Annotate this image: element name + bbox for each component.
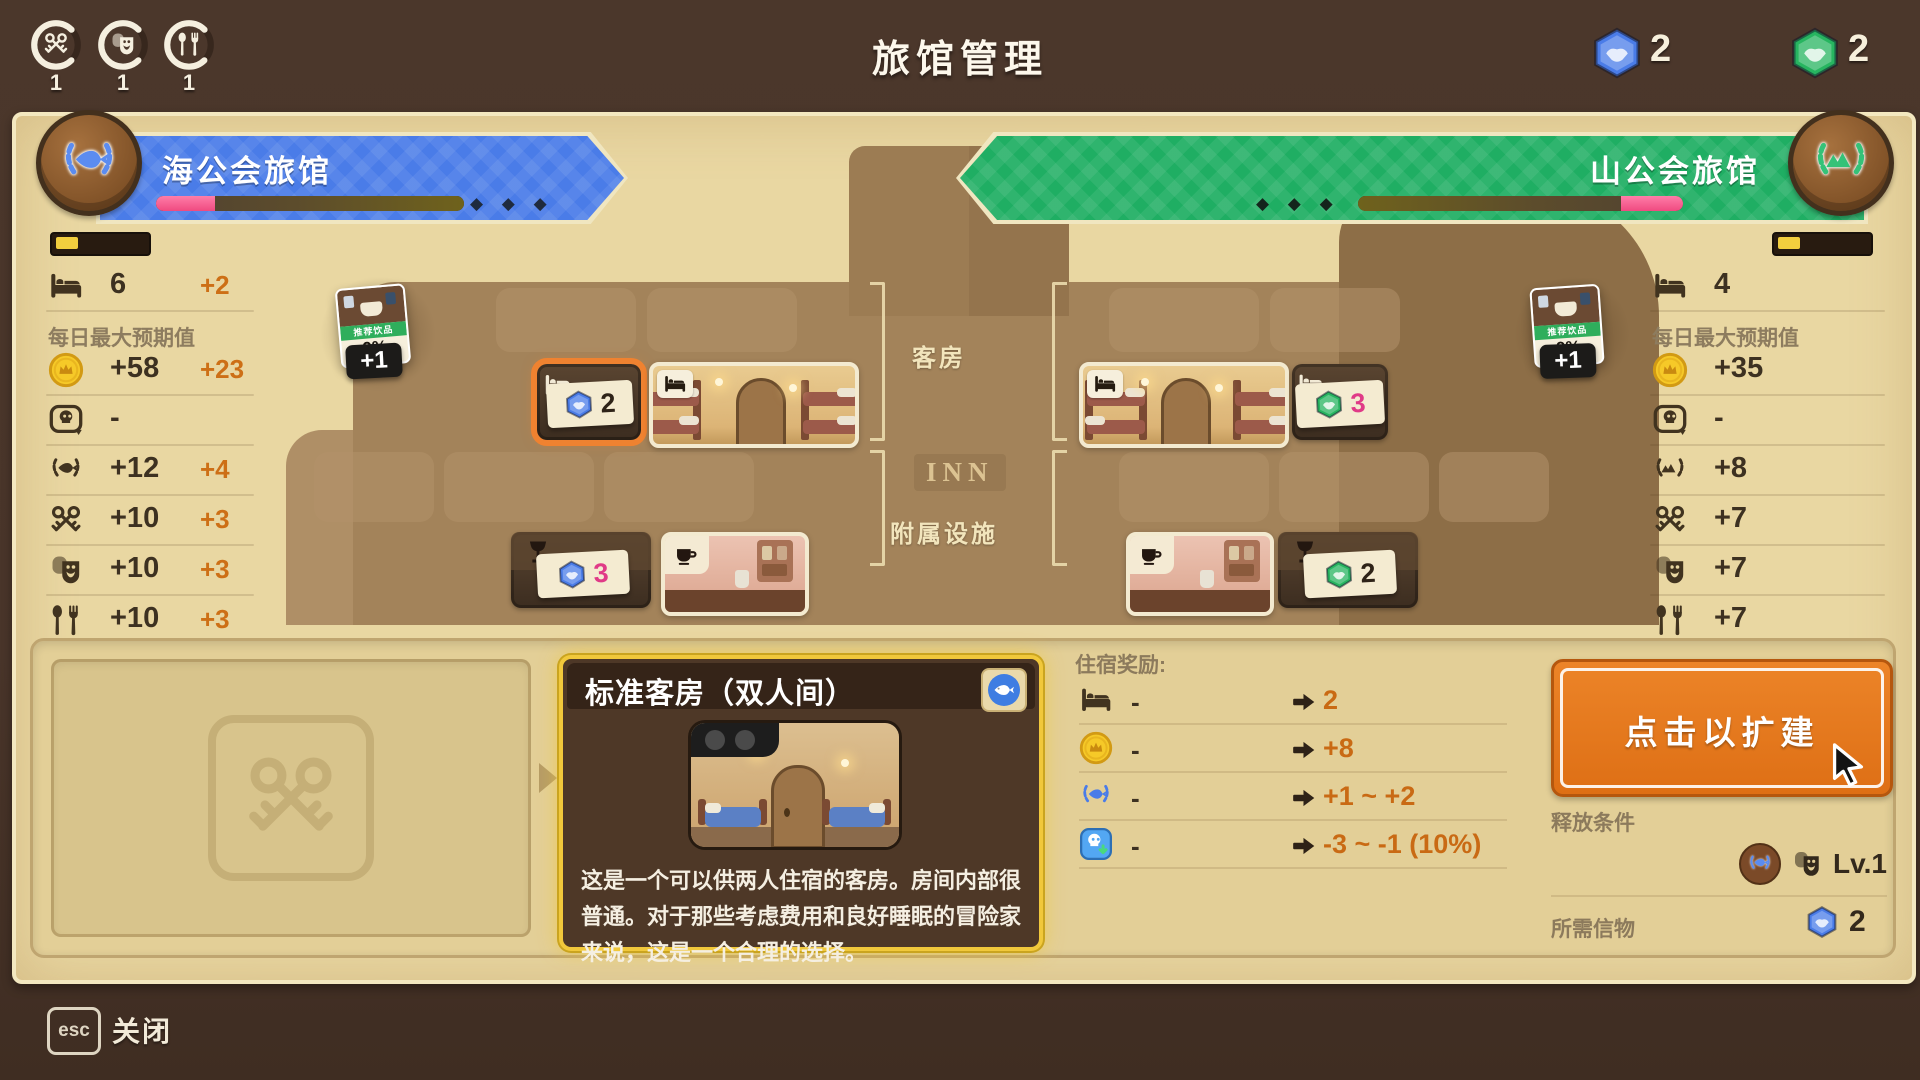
divider (1551, 895, 1887, 897)
required-token-count: 2 (1849, 905, 1866, 939)
coffee-cup-icon (674, 542, 700, 568)
divider (1079, 723, 1507, 725)
stat-value: 6 (110, 268, 126, 301)
stat-delta: +3 (200, 504, 230, 535)
reward-result: +8 (1323, 733, 1354, 764)
reward-current: - (1131, 831, 1140, 862)
blue-token-icon (557, 559, 589, 591)
facility-cafe-left[interactable] (661, 532, 809, 616)
right-inn-rank-diamonds: ◆ ◆ ◆ (1256, 194, 1340, 214)
fish-laurel-icon (1079, 779, 1113, 813)
right-inn-progress (1358, 196, 1683, 211)
blue-token-count: 2 (1650, 28, 1671, 71)
coin-icon (1079, 731, 1113, 765)
stat-value: +7 (1714, 552, 1747, 585)
required-tokens-row: 2 (1805, 905, 1866, 939)
stat-value: +35 (1714, 352, 1763, 385)
reward-result: 2 (1323, 685, 1338, 716)
candle-light (1215, 384, 1223, 392)
right-inn-banner: 山公会旅馆 ◆ ◆ ◆ (956, 132, 1868, 224)
blue-token-icon (1590, 26, 1644, 80)
cafe-shelf (1224, 540, 1260, 582)
arrow-right-icon (1291, 737, 1317, 763)
divider (1650, 594, 1885, 596)
fish-laurel-icon (58, 132, 120, 194)
stat-row-keys-right: +7 (1652, 500, 1882, 538)
reward-row-gold: - +8 (1079, 731, 1509, 771)
stat-row-masks-left: +10 +3 (48, 550, 253, 588)
drink-art (337, 285, 406, 327)
coin-icon (48, 352, 84, 388)
wall-tile (496, 288, 636, 352)
bed-icon (1079, 683, 1113, 717)
stat-value: +10 (110, 602, 159, 635)
stat-delta: +3 (200, 554, 230, 585)
room-door (1161, 378, 1211, 448)
stat-row-gold-left: +58 +23 (48, 350, 253, 388)
daily-expectation-label-right: 每日最大预期值 (1652, 322, 1799, 352)
fish-disc (988, 674, 1020, 706)
divider (46, 394, 254, 396)
stat-row-beds-right: 4 (1652, 266, 1882, 304)
stat-delta: +23 (200, 354, 244, 385)
stat-value: +12 (110, 452, 159, 485)
blue-token-icon (564, 389, 596, 421)
wall-tile (604, 452, 754, 522)
lodging-rewards-header: 住宿奖励: (1075, 649, 1166, 679)
stat-value: +10 (110, 552, 159, 585)
divider (1079, 819, 1507, 821)
cost-count: 2 (1360, 557, 1377, 589)
card-title: 标准客房（双人间） (585, 670, 855, 712)
rooms-bracket-left (870, 282, 885, 441)
candle-light (1141, 378, 1149, 386)
facilities-bracket-right (1052, 450, 1067, 566)
stat-row-dining-left: +10 +3 (48, 600, 253, 638)
stat-row-reputation-left: +12 +4 (48, 450, 253, 488)
reward-row-reputation: - +1 ~ +2 (1079, 779, 1509, 819)
divider (1650, 544, 1885, 546)
divider (1079, 771, 1507, 773)
reward-result: -3 ~ -1 (10%) (1323, 829, 1481, 860)
stat-delta: +2 (200, 270, 230, 301)
required-tokens-label: 所需信物 (1551, 913, 1635, 943)
room-standard-right[interactable] (1079, 362, 1289, 448)
bunk-bed (1233, 380, 1289, 440)
stat-value: 4 (1714, 268, 1730, 301)
room-door (771, 765, 825, 847)
candle-light (789, 384, 797, 392)
close-button[interactable]: 关闭 (112, 1010, 172, 1050)
blue-token-icon (1805, 905, 1839, 939)
room-preview-image (691, 723, 899, 847)
right-inn-level-gauge (1772, 232, 1873, 256)
divider (46, 544, 254, 546)
green-token-icon (1324, 559, 1356, 591)
bed-icon (1652, 268, 1688, 304)
divider (46, 444, 254, 446)
release-level: Lv.1 (1833, 848, 1887, 880)
divider (46, 494, 254, 496)
esc-key-button[interactable]: esc (47, 1007, 101, 1055)
cup-sign (665, 536, 709, 574)
stat-row-reputation-right: +8 (1652, 450, 1882, 488)
occupancy-corner (691, 723, 779, 757)
cost-count: 2 (600, 387, 617, 419)
mountain-laurel-icon (1810, 132, 1872, 194)
divider (1650, 494, 1885, 496)
empty-selection-slot (51, 659, 531, 937)
mouse-cursor-icon (1825, 741, 1871, 787)
cafe-counter (1130, 590, 1270, 612)
divider (1650, 444, 1885, 446)
room-slot-selected[interactable]: 2 (537, 364, 641, 440)
stat-value: - (1714, 402, 1724, 435)
drink-art (1531, 286, 1599, 327)
drink-bonus-badge: +1 (1539, 343, 1596, 379)
stat-value: +7 (1714, 602, 1747, 635)
green-token-icon (1788, 26, 1842, 80)
right-inn-emblem (1788, 110, 1894, 216)
facilities-bracket-left (870, 450, 885, 566)
wall-tile (647, 288, 797, 352)
stat-value: - (110, 402, 120, 435)
divider (1650, 310, 1885, 312)
bed-left (701, 807, 765, 837)
reward-current: - (1131, 783, 1140, 814)
candle-light (715, 378, 723, 386)
inn-management-screen: 1 1 1 旅馆管理 2 2 (0, 0, 1920, 1080)
coffee-cup-icon (1139, 542, 1165, 568)
wall-tile (1109, 288, 1259, 352)
cup-sign (1130, 536, 1174, 574)
left-inn-level-gauge (50, 232, 151, 256)
drink-bonus-badge: +1 (345, 343, 403, 380)
guild-emblem-icon (1739, 843, 1781, 885)
selected-room-card[interactable]: 标准客房（双人间） (559, 655, 1043, 951)
coin-icon (1652, 352, 1688, 388)
cafe-counter (665, 590, 805, 612)
right-inn-name: 山公会旅馆 (1200, 146, 1760, 191)
fish-icon (992, 678, 1016, 702)
kettle (735, 570, 749, 588)
cost-tag: 2 (546, 380, 634, 428)
arrow-right-icon (1291, 833, 1317, 859)
stat-value: +8 (1714, 452, 1747, 485)
release-condition-label: 释放条件 (1551, 807, 1635, 837)
stat-value: +10 (110, 502, 159, 535)
chevron-right-icon (539, 763, 557, 793)
bed-count-badge (1087, 370, 1123, 398)
stat-value: +58 (110, 352, 159, 385)
skull-risk-icon (1652, 402, 1688, 438)
room-standard-left[interactable] (649, 362, 859, 448)
divider (1079, 867, 1507, 869)
stat-row-risk-left: - (48, 400, 253, 438)
stat-delta: +3 (200, 604, 230, 635)
bed-icon (1093, 372, 1117, 396)
wall-tile (444, 452, 594, 522)
left-inn-rank-diamonds: ◆ ◆ ◆ (470, 194, 554, 214)
reward-result: +1 ~ +2 (1323, 781, 1415, 812)
reward-current: - (1131, 687, 1140, 718)
crossed-keys-icon (239, 746, 343, 850)
left-inn-emblem (36, 110, 142, 216)
cost-count: 3 (593, 557, 610, 589)
crossed-keys-icon (1652, 502, 1688, 538)
divider (46, 310, 254, 312)
crossed-keys-icon (48, 502, 84, 538)
cafe-shelf (757, 540, 793, 582)
stat-row-beds-left: 6 +2 (48, 266, 253, 304)
stat-row-masks-right: +7 (1652, 550, 1882, 588)
rooms-section-label: 客房 (912, 338, 966, 373)
room-slot-locked-right[interactable]: 3 (1292, 364, 1388, 440)
stat-row-gold-right: +35 (1652, 350, 1882, 388)
facility-bar-left[interactable]: 3 (511, 532, 651, 608)
stat-delta: +4 (200, 454, 230, 485)
stat-row-keys-left: +10 +3 (48, 500, 253, 538)
facility-cafe-right[interactable] (1126, 532, 1274, 616)
cost-tag: 3 (536, 550, 630, 599)
esc-key-label: esc (58, 1020, 90, 1042)
left-inn-progress (156, 196, 464, 211)
divider (46, 594, 254, 596)
card-titlebar: 标准客房（双人间） (567, 663, 1035, 709)
cost-tag: 2 (1303, 550, 1397, 599)
theater-masks-icon (48, 552, 84, 588)
fish-laurel-icon (1747, 851, 1773, 877)
wall-tile (1279, 452, 1429, 522)
wall-tile (314, 452, 434, 522)
dining-icon (1652, 602, 1688, 638)
reward-row-risk: - -3 ~ -1 (10%) (1079, 827, 1509, 867)
room-door (736, 378, 786, 448)
green-token-icon (1314, 389, 1346, 421)
inn-sign: INN (914, 454, 1006, 491)
detail-panel: 标准客房（双人间） (30, 638, 1896, 958)
wall-tile (1119, 452, 1269, 522)
divider (1650, 394, 1885, 396)
arrow-right-icon (1291, 785, 1317, 811)
theater-masks-icon (1652, 552, 1688, 588)
daily-expectation-label-left: 每日最大预期值 (48, 322, 195, 352)
reward-current: - (1131, 735, 1140, 766)
facilities-section-label: 附属设施 (890, 514, 998, 549)
left-inn-name: 海公会旅馆 (162, 146, 332, 191)
left-inn-banner: 海公会旅馆 ◆ ◆ ◆ (96, 132, 628, 224)
card-description: 这是一个可以供两人住宿的客房。房间内部很普通。对于那些考虑费用和良好睡眠的冒险家… (581, 863, 1021, 971)
kettle (1200, 570, 1214, 588)
bunk-bed (801, 380, 859, 440)
cost-count: 3 (1350, 387, 1367, 419)
stat-row-risk-right: - (1652, 400, 1882, 438)
release-condition-row: Lv.1 (1705, 843, 1887, 885)
bed-right (825, 807, 889, 837)
bed-icon (663, 372, 687, 396)
bed-icon (48, 268, 84, 304)
facility-bar-right[interactable]: 2 (1278, 532, 1418, 608)
stat-row-dining-right: +7 (1652, 600, 1882, 638)
keys-watermark (208, 715, 374, 881)
rooms-bracket-right (1052, 282, 1067, 441)
candle-light (841, 759, 849, 767)
wall-tile (1270, 288, 1400, 352)
skull-risk-icon (48, 402, 84, 438)
bed-count-badge (657, 370, 693, 398)
wall-tile (1439, 452, 1549, 522)
theater-masks-icon (1791, 848, 1823, 880)
dining-icon (48, 602, 84, 638)
cost-tag: 3 (1295, 380, 1385, 429)
stat-value: +7 (1714, 502, 1747, 535)
fish-token-button[interactable] (981, 668, 1027, 712)
reward-row-beds: - 2 (1079, 683, 1509, 723)
fish-laurel-icon (48, 452, 84, 488)
arrow-right-icon (1291, 689, 1317, 715)
mountain-laurel-icon (1652, 452, 1688, 488)
green-token-count: 2 (1848, 28, 1869, 71)
risk-skull-icon (1079, 827, 1113, 861)
